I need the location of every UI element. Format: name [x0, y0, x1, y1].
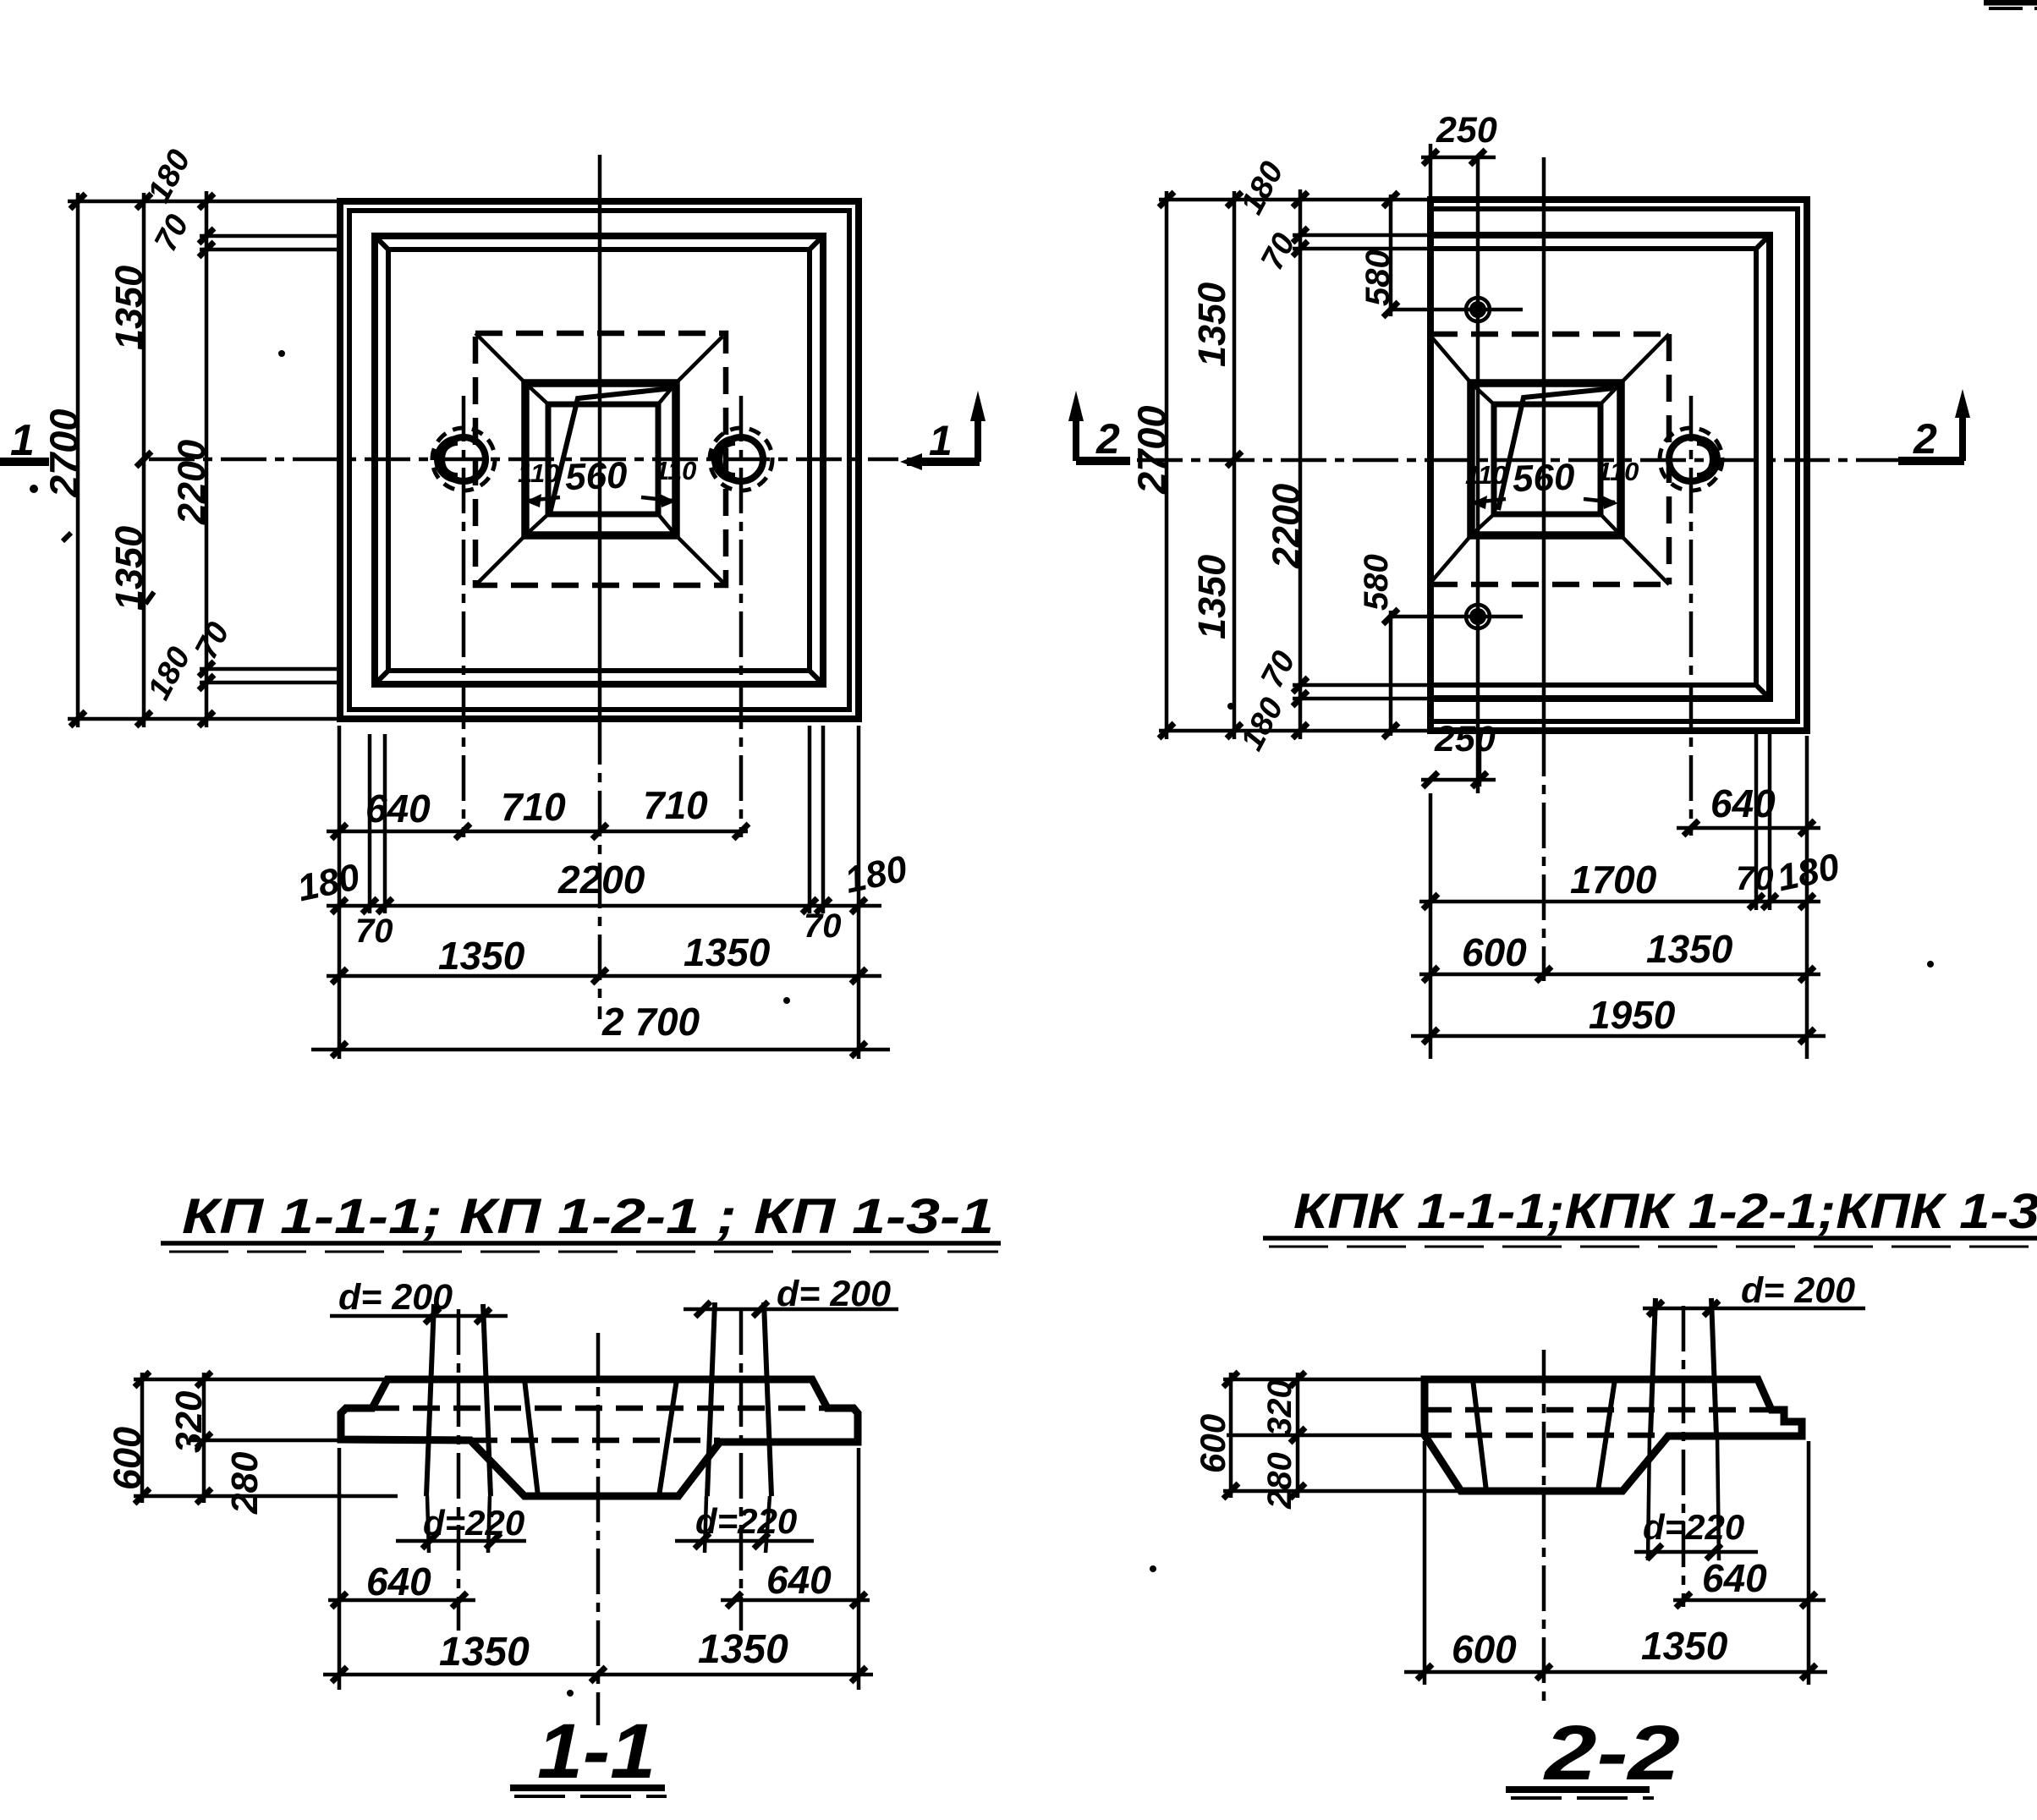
svg-text:1350: 1350 — [107, 526, 151, 611]
svg-text:640: 640 — [766, 1558, 832, 1602]
svg-text:1350: 1350 — [1641, 1624, 1728, 1668]
svg-text:320: 320 — [168, 1390, 210, 1453]
svg-text:640: 640 — [1710, 781, 1776, 825]
svg-text:280: 280 — [224, 1451, 266, 1515]
svg-text:КП 1-1-1; КП 1-2-1 ; КП 1-3-1: КП 1-1-1; КП 1-2-1 ; КП 1-3-1 — [182, 1189, 994, 1244]
svg-text:710: 710 — [501, 785, 566, 829]
svg-text:1950: 1950 — [1589, 993, 1676, 1037]
svg-text:1350: 1350 — [684, 930, 771, 974]
svg-text:2: 2 — [1095, 415, 1120, 463]
svg-text:250: 250 — [1434, 719, 1496, 759]
svg-text:70: 70 — [355, 913, 393, 950]
svg-text:2200: 2200 — [1265, 484, 1308, 569]
svg-text:640: 640 — [1702, 1556, 1767, 1600]
svg-text:580: 580 — [1359, 249, 1397, 306]
svg-text:1350: 1350 — [1190, 555, 1233, 639]
svg-text:110: 110 — [1465, 460, 1507, 490]
svg-text:d= 200: d= 200 — [1741, 1270, 1855, 1311]
svg-text:250: 250 — [1436, 110, 1497, 151]
svg-text:2-2: 2-2 — [1543, 1710, 1680, 1796]
svg-text:1-1: 1-1 — [537, 1708, 656, 1795]
svg-text:d=220: d=220 — [695, 1501, 797, 1541]
svg-text:110: 110 — [518, 458, 559, 488]
svg-text:640: 640 — [365, 787, 431, 831]
svg-text:600: 600 — [1193, 1414, 1233, 1473]
svg-text:580: 580 — [1358, 554, 1395, 611]
svg-text:1350: 1350 — [698, 1627, 788, 1672]
svg-text:КПК 1-1-1;КПК 1-2-1;КПК 1-3-1: КПК 1-1-1;КПК 1-2-1;КПК 1-3-1 — [1293, 1184, 2037, 1239]
svg-text:280: 280 — [1261, 1452, 1299, 1510]
svg-text:d= 200: d= 200 — [777, 1274, 891, 1314]
svg-text:2700: 2700 — [41, 408, 86, 498]
svg-text:70: 70 — [1736, 860, 1774, 897]
svg-text:320: 320 — [1261, 1379, 1299, 1436]
svg-text:2200: 2200 — [557, 858, 645, 902]
svg-text:1: 1 — [929, 417, 953, 464]
svg-text:2200: 2200 — [170, 440, 213, 525]
svg-text:1350: 1350 — [107, 266, 151, 350]
svg-text:2 700: 2 700 — [601, 1000, 700, 1044]
svg-text:d=220: d=220 — [1643, 1507, 1744, 1547]
svg-text:710: 710 — [643, 783, 708, 827]
svg-text:1350: 1350 — [1646, 927, 1733, 971]
svg-text:d=220: d=220 — [423, 1503, 524, 1543]
svg-text:70: 70 — [804, 907, 842, 945]
svg-text:560: 560 — [564, 455, 629, 499]
svg-text:2700: 2700 — [1129, 405, 1174, 495]
svg-text:2: 2 — [1913, 415, 1937, 463]
svg-text:d= 200: d= 200 — [338, 1277, 453, 1318]
svg-text:640: 640 — [366, 1560, 431, 1603]
svg-text:1350: 1350 — [1190, 282, 1233, 367]
svg-text:600: 600 — [1462, 930, 1527, 974]
svg-text:1: 1 — [10, 416, 35, 465]
svg-text:600: 600 — [1452, 1627, 1517, 1671]
svg-text:1350: 1350 — [438, 934, 525, 978]
svg-text:1700: 1700 — [1570, 858, 1657, 902]
svg-text:1350: 1350 — [439, 1630, 530, 1675]
svg-text:600: 600 — [106, 1427, 149, 1490]
